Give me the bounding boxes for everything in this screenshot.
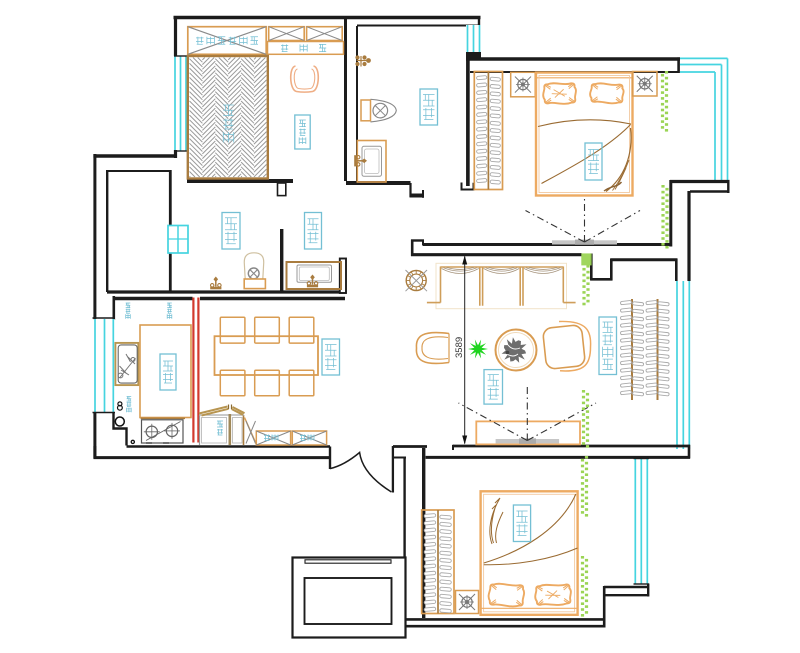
svg-text:3589: 3589 xyxy=(454,337,465,358)
